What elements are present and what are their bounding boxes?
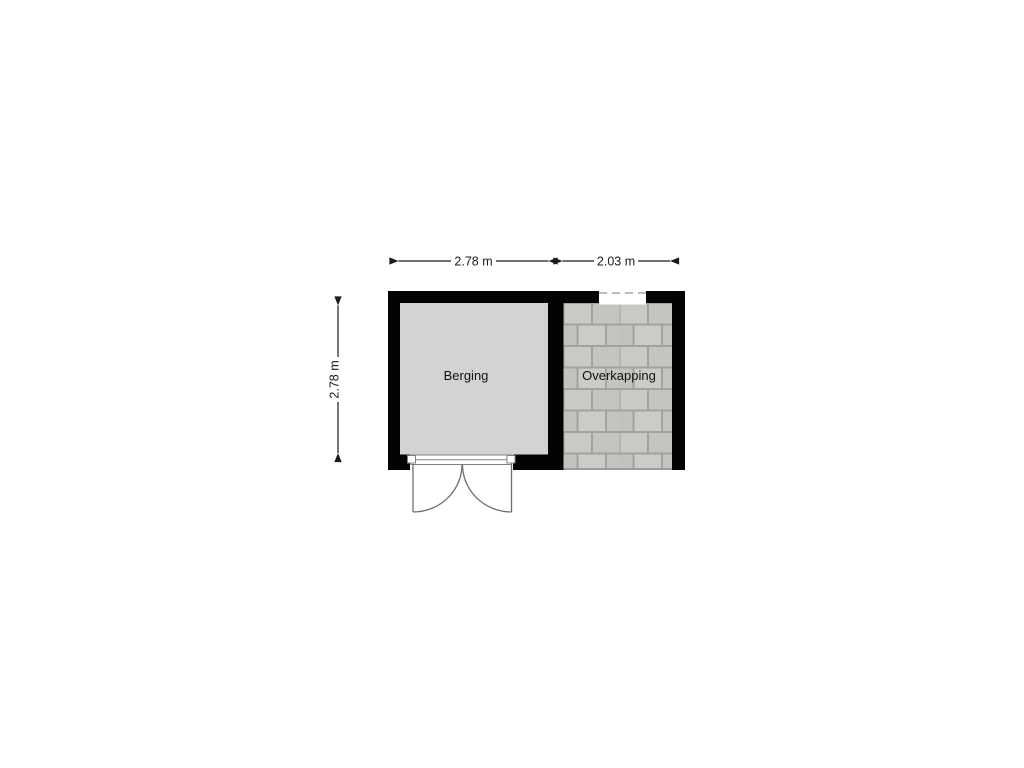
dimension-label: 2.03 m	[597, 255, 635, 269]
overkapping-paving	[564, 303, 673, 469]
wall-opening-top	[599, 291, 646, 305]
wall-right	[672, 291, 685, 470]
dimension-label: 2.78 m	[454, 255, 492, 269]
wall-divider	[548, 291, 564, 470]
area-overkapping: Overkapping	[564, 303, 673, 469]
dimension-berging-width: 2.78 m	[399, 254, 549, 269]
dimension-overkapping-width: 2.03 m	[563, 254, 671, 269]
floorplan-canvas: Berging Overkapping	[0, 0, 1024, 768]
double-door	[408, 455, 516, 513]
door-hinge-left	[408, 456, 416, 464]
door-swing-right	[463, 465, 512, 513]
floorplan-page: Berging Overkapping	[0, 0, 1024, 768]
berging-label: Berging	[444, 368, 489, 383]
door-hinge-right	[507, 456, 515, 464]
dimension-label: 2.78 m	[328, 360, 342, 398]
wall-left	[388, 291, 400, 470]
door-swing-left	[413, 465, 462, 513]
overkapping-label: Overkapping	[582, 368, 656, 383]
dimension-berging-height: 2.78 m	[327, 306, 342, 454]
room-berging: Berging	[400, 303, 548, 455]
